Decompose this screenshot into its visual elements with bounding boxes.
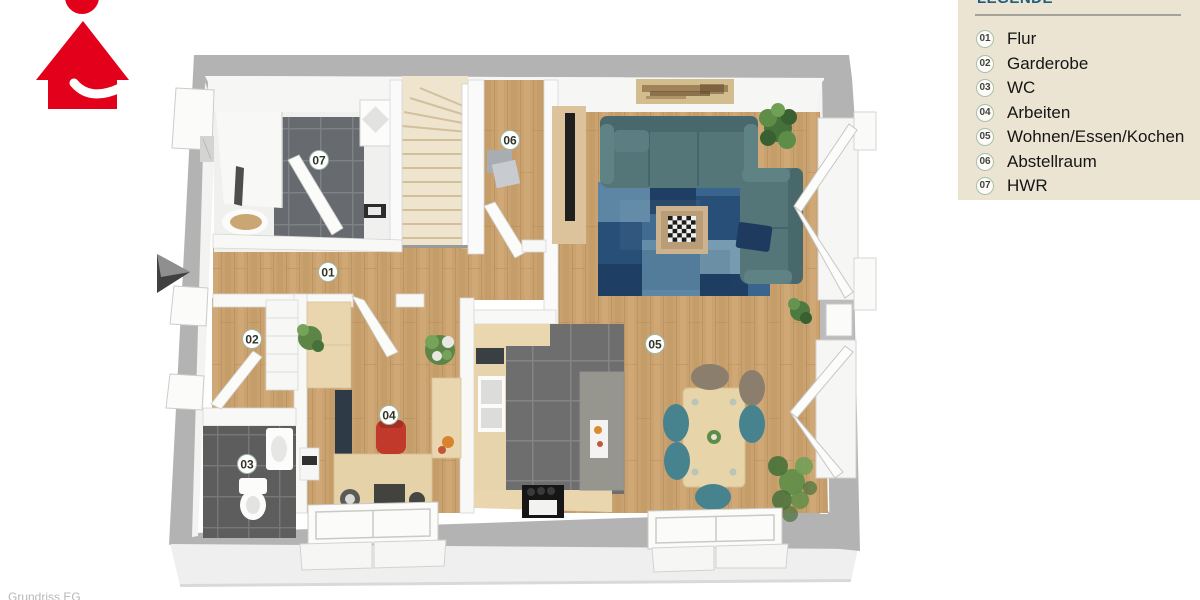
svg-text:02: 02 (245, 333, 259, 347)
svg-text:Grundriss EG: Grundriss EG (8, 590, 81, 600)
svg-text:01: 01 (321, 266, 335, 280)
svg-text:03: 03 (240, 458, 254, 472)
svg-text:06: 06 (503, 134, 517, 148)
svg-text:05: 05 (648, 338, 662, 352)
svg-text:04: 04 (382, 409, 396, 423)
svg-text:07: 07 (312, 154, 326, 168)
